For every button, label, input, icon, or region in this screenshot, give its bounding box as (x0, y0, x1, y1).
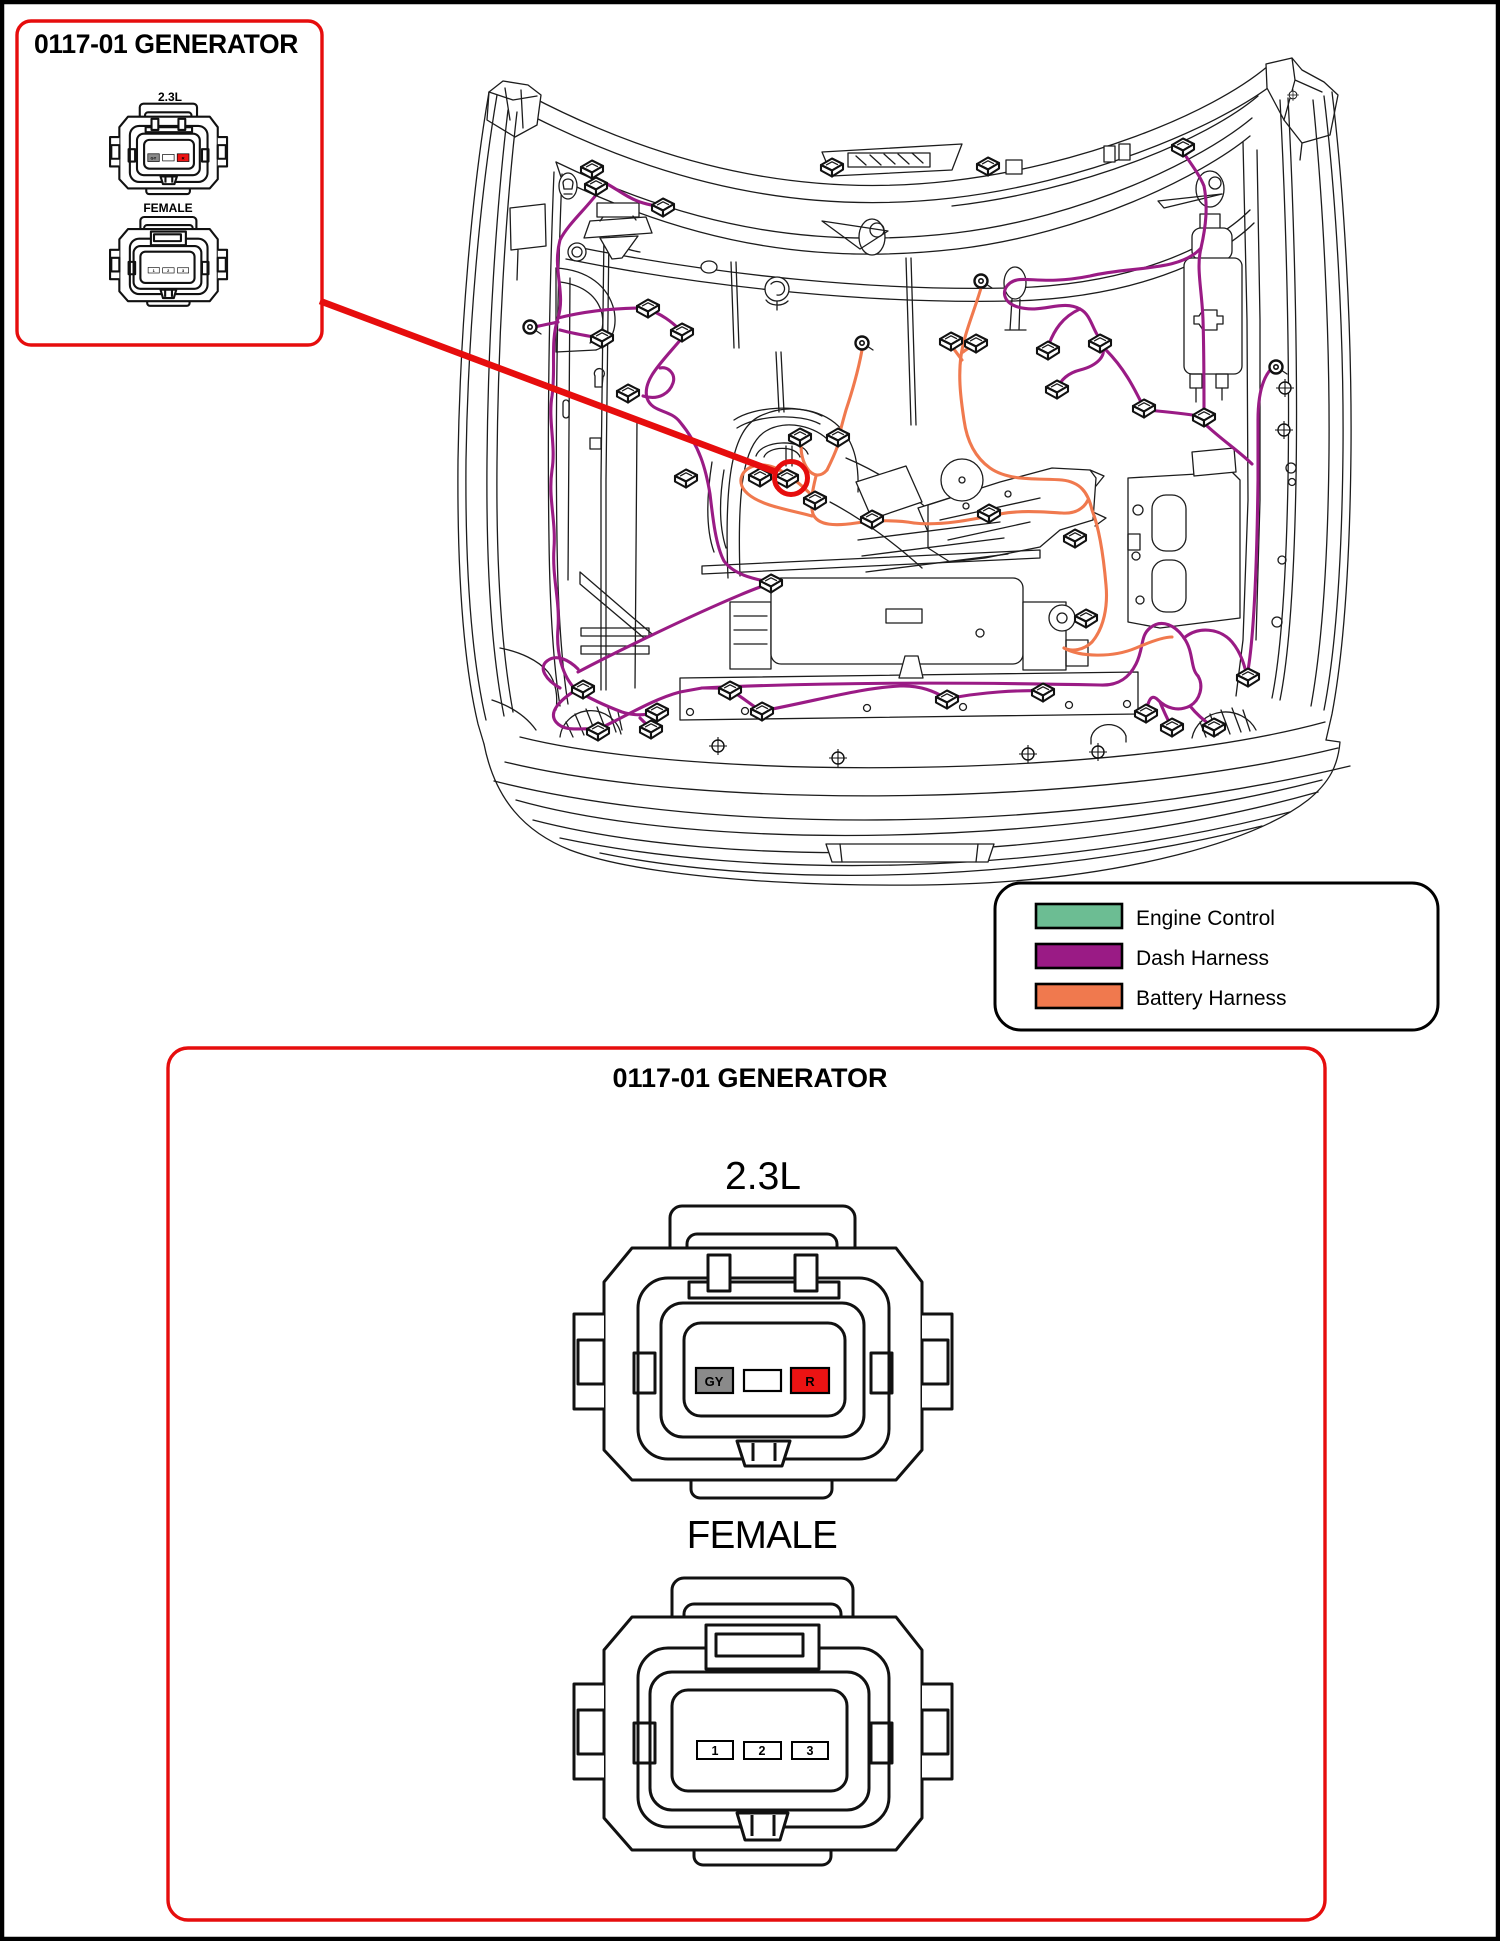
svg-text:FEMALE: FEMALE (143, 201, 192, 215)
svg-text:FEMALE: FEMALE (687, 1514, 837, 1557)
svg-text:Dash Harness: Dash Harness (1136, 947, 1269, 970)
svg-text:2.3L: 2.3L (725, 1155, 801, 1198)
svg-text:Battery Harness: Battery Harness (1136, 987, 1287, 1010)
svg-text:0117-01 GENERATOR: 0117-01 GENERATOR (34, 29, 298, 59)
svg-text:Engine Control: Engine Control (1136, 907, 1275, 930)
svg-text:0117-01 GENERATOR: 0117-01 GENERATOR (612, 1063, 887, 1093)
svg-text:2.3L: 2.3L (158, 90, 182, 104)
